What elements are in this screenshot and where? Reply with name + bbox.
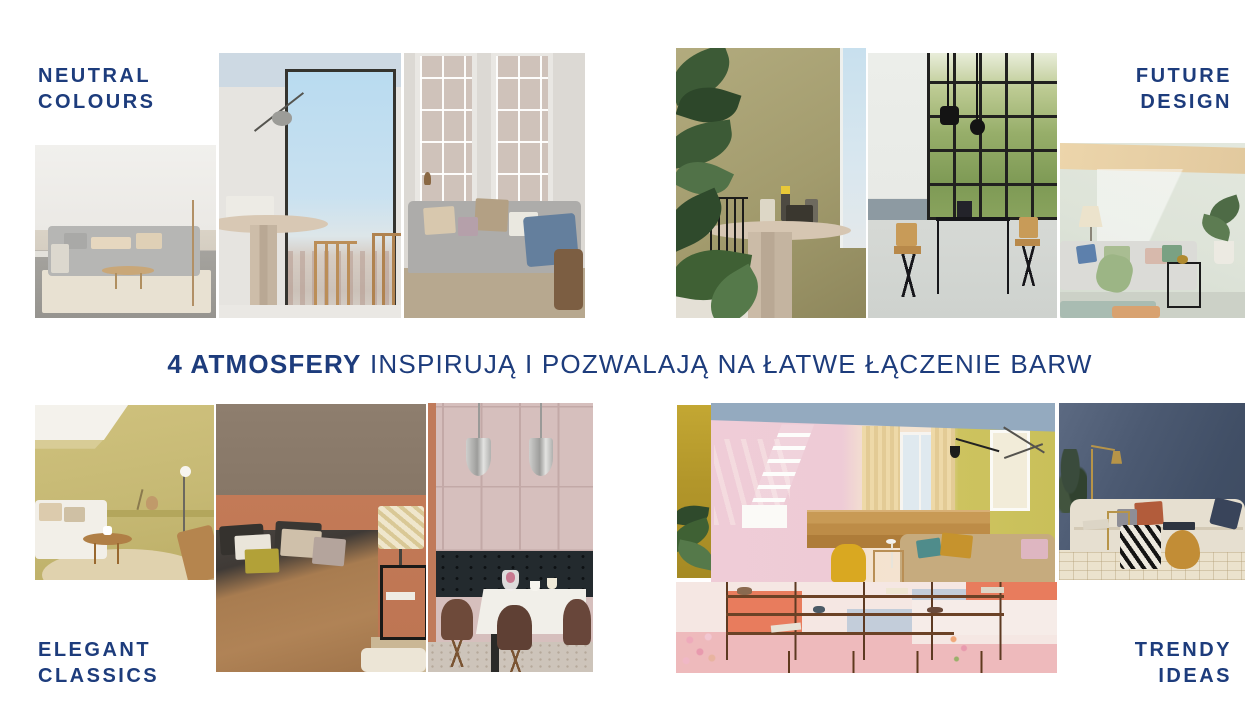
books <box>981 587 1004 592</box>
photo-elegant-olive-living-room <box>35 405 214 580</box>
floor-lamp-pole <box>183 475 185 538</box>
throw-blanket <box>51 244 69 273</box>
books <box>886 588 909 593</box>
label-future-design: FUTUREDESIGN <box>1136 63 1232 115</box>
door-frame <box>919 435 921 521</box>
pillow <box>311 537 345 566</box>
label-line: TRENDY <box>1135 639 1232 661</box>
desk-leg <box>937 221 939 294</box>
window <box>491 53 553 212</box>
headline: 4 ATMOSFERY INSPIRUJĄ I POZWALAJĄ NA ŁAT… <box>0 349 1260 380</box>
pendant-cord <box>947 53 949 106</box>
coffee-table <box>83 533 131 545</box>
shell-chair <box>563 599 591 645</box>
pendant-cord <box>540 403 542 441</box>
chair-legs <box>1017 246 1040 286</box>
chair-seat <box>894 246 920 254</box>
chair-legs <box>504 648 527 672</box>
label-line: DESIGN <box>1140 91 1232 113</box>
teal-cushion <box>916 537 942 558</box>
photo-neutral-grey-living-room <box>35 145 216 318</box>
coffee-table <box>102 266 154 275</box>
photo-trendy-colour-block-shelving <box>676 582 1057 673</box>
table-leg <box>117 543 119 564</box>
window <box>990 430 1030 511</box>
photo-elegant-pink-dining-room <box>428 403 593 672</box>
pink-cushion <box>1021 539 1049 559</box>
wall-ledge <box>92 510 214 517</box>
vase <box>737 587 752 594</box>
photo-neutral-desk-window <box>219 53 401 318</box>
desk-leg <box>1007 221 1009 294</box>
cushion <box>64 507 85 523</box>
panelled-wall <box>436 403 593 554</box>
vase <box>146 496 159 510</box>
label-trendy-ideas: TRENDYIDEAS <box>1135 637 1232 689</box>
table-lamp-shade <box>378 506 424 549</box>
photo-elegant-terracotta-bedroom <box>216 404 426 672</box>
pendant-lamp <box>466 438 491 476</box>
chartreuse-pillow <box>245 548 279 573</box>
brass-lamp-shade <box>1111 451 1122 464</box>
shelf <box>726 595 1004 598</box>
photo-future-industrial-office <box>868 53 1057 318</box>
vase <box>927 607 942 613</box>
photo-trendy-navy-lounge <box>1059 403 1245 580</box>
glass-wall <box>927 53 1057 220</box>
books <box>1163 522 1195 531</box>
label-line: IDEAS <box>1158 665 1232 687</box>
floor-lamp-globe <box>180 466 191 477</box>
bowl <box>547 578 557 589</box>
stair-landing <box>742 505 787 528</box>
mustard-pouf <box>1165 530 1200 569</box>
table-lamp-base <box>399 549 402 565</box>
photo-future-sage-lounge <box>1060 143 1245 318</box>
cushion <box>39 503 62 521</box>
photo-trendy-pink-loft <box>711 403 1055 582</box>
terracotta-cushion <box>1134 501 1163 526</box>
cushion <box>423 206 456 235</box>
plant-pot <box>1214 241 1234 264</box>
bowl <box>530 581 540 592</box>
label-line: ELEGANT <box>38 639 151 661</box>
brush-jar <box>760 199 775 223</box>
shell-chair <box>441 599 472 639</box>
wooden-chair <box>873 550 905 582</box>
cushion <box>1076 243 1097 263</box>
plant-leaf <box>677 540 711 571</box>
floor <box>219 305 401 318</box>
wall-ledge <box>868 199 927 220</box>
chair-back <box>896 223 917 247</box>
zigzag-pouf <box>1120 525 1161 569</box>
nightstand <box>380 565 426 641</box>
laptop <box>957 201 972 217</box>
beam <box>35 440 103 449</box>
headline-bold: 4 ATMOSFERY <box>167 349 361 379</box>
photo-neutral-sofa-windows <box>404 53 585 318</box>
slide: NEUTRALCOLOURS <box>0 0 1260 701</box>
pendant-lamp <box>529 438 554 476</box>
chair-seat <box>1015 239 1040 247</box>
shell-chair <box>497 605 532 651</box>
label-line: NEUTRAL <box>38 65 151 87</box>
vase <box>813 606 824 613</box>
table-leg <box>140 273 142 289</box>
brass-vase <box>1177 255 1188 264</box>
cushion <box>136 233 161 249</box>
label-neutral-colours: NEUTRALCOLOURS <box>38 63 156 115</box>
pendant-cord <box>976 53 978 119</box>
mug <box>103 526 112 535</box>
pendant-lamp <box>940 106 959 125</box>
flower-bouquet <box>676 629 722 673</box>
cushion <box>458 217 478 236</box>
label-line: CLASSICS <box>38 665 159 687</box>
metal-side-table <box>1167 262 1201 308</box>
yellow-chair <box>831 544 865 582</box>
label-elegant-classics: ELEGANTCLASSICS <box>38 637 159 689</box>
shag-rug <box>361 648 426 672</box>
window-slit <box>840 48 866 248</box>
glass-wall-grid <box>927 53 1057 220</box>
photo-future-olive-studio <box>676 48 866 318</box>
chair-back <box>1019 217 1038 238</box>
brass-lamp-arm <box>1091 445 1115 451</box>
window <box>415 53 477 212</box>
tree-stump-table <box>554 249 583 310</box>
mustard-cushion <box>940 532 973 558</box>
window-grid <box>496 56 548 207</box>
label-line: FUTURE <box>1136 65 1232 87</box>
terracotta-wall-edge <box>428 403 436 672</box>
plant-leaf <box>676 119 735 169</box>
table-leg <box>115 273 117 289</box>
shelf <box>726 632 955 635</box>
chair-legs <box>446 637 467 667</box>
pendant-cord <box>478 403 480 441</box>
bottle-cap <box>781 186 791 194</box>
label-line: COLOURS <box>38 91 156 113</box>
cushion <box>91 237 131 249</box>
bunny-figurine <box>424 172 431 185</box>
floor-lamp <box>192 200 194 306</box>
curtain <box>862 426 900 519</box>
table-leg <box>94 543 96 564</box>
rug <box>42 270 210 313</box>
desk <box>936 217 1010 253</box>
shelf <box>726 613 1004 616</box>
headline-rest: INSPIRUJĄ I POZWALAJĄ NA ŁATWE ŁĄCZENIE … <box>370 349 1093 379</box>
rug <box>1112 306 1160 318</box>
flower-vase <box>943 632 973 668</box>
curtain <box>931 426 955 516</box>
wall-lamp-shade <box>950 446 960 458</box>
cushion <box>474 198 508 231</box>
decor-branch <box>136 489 143 510</box>
photo-trendy-mustard-strip <box>677 405 711 578</box>
books <box>386 592 415 600</box>
chair-legs <box>896 254 921 296</box>
ceiling <box>35 405 128 440</box>
